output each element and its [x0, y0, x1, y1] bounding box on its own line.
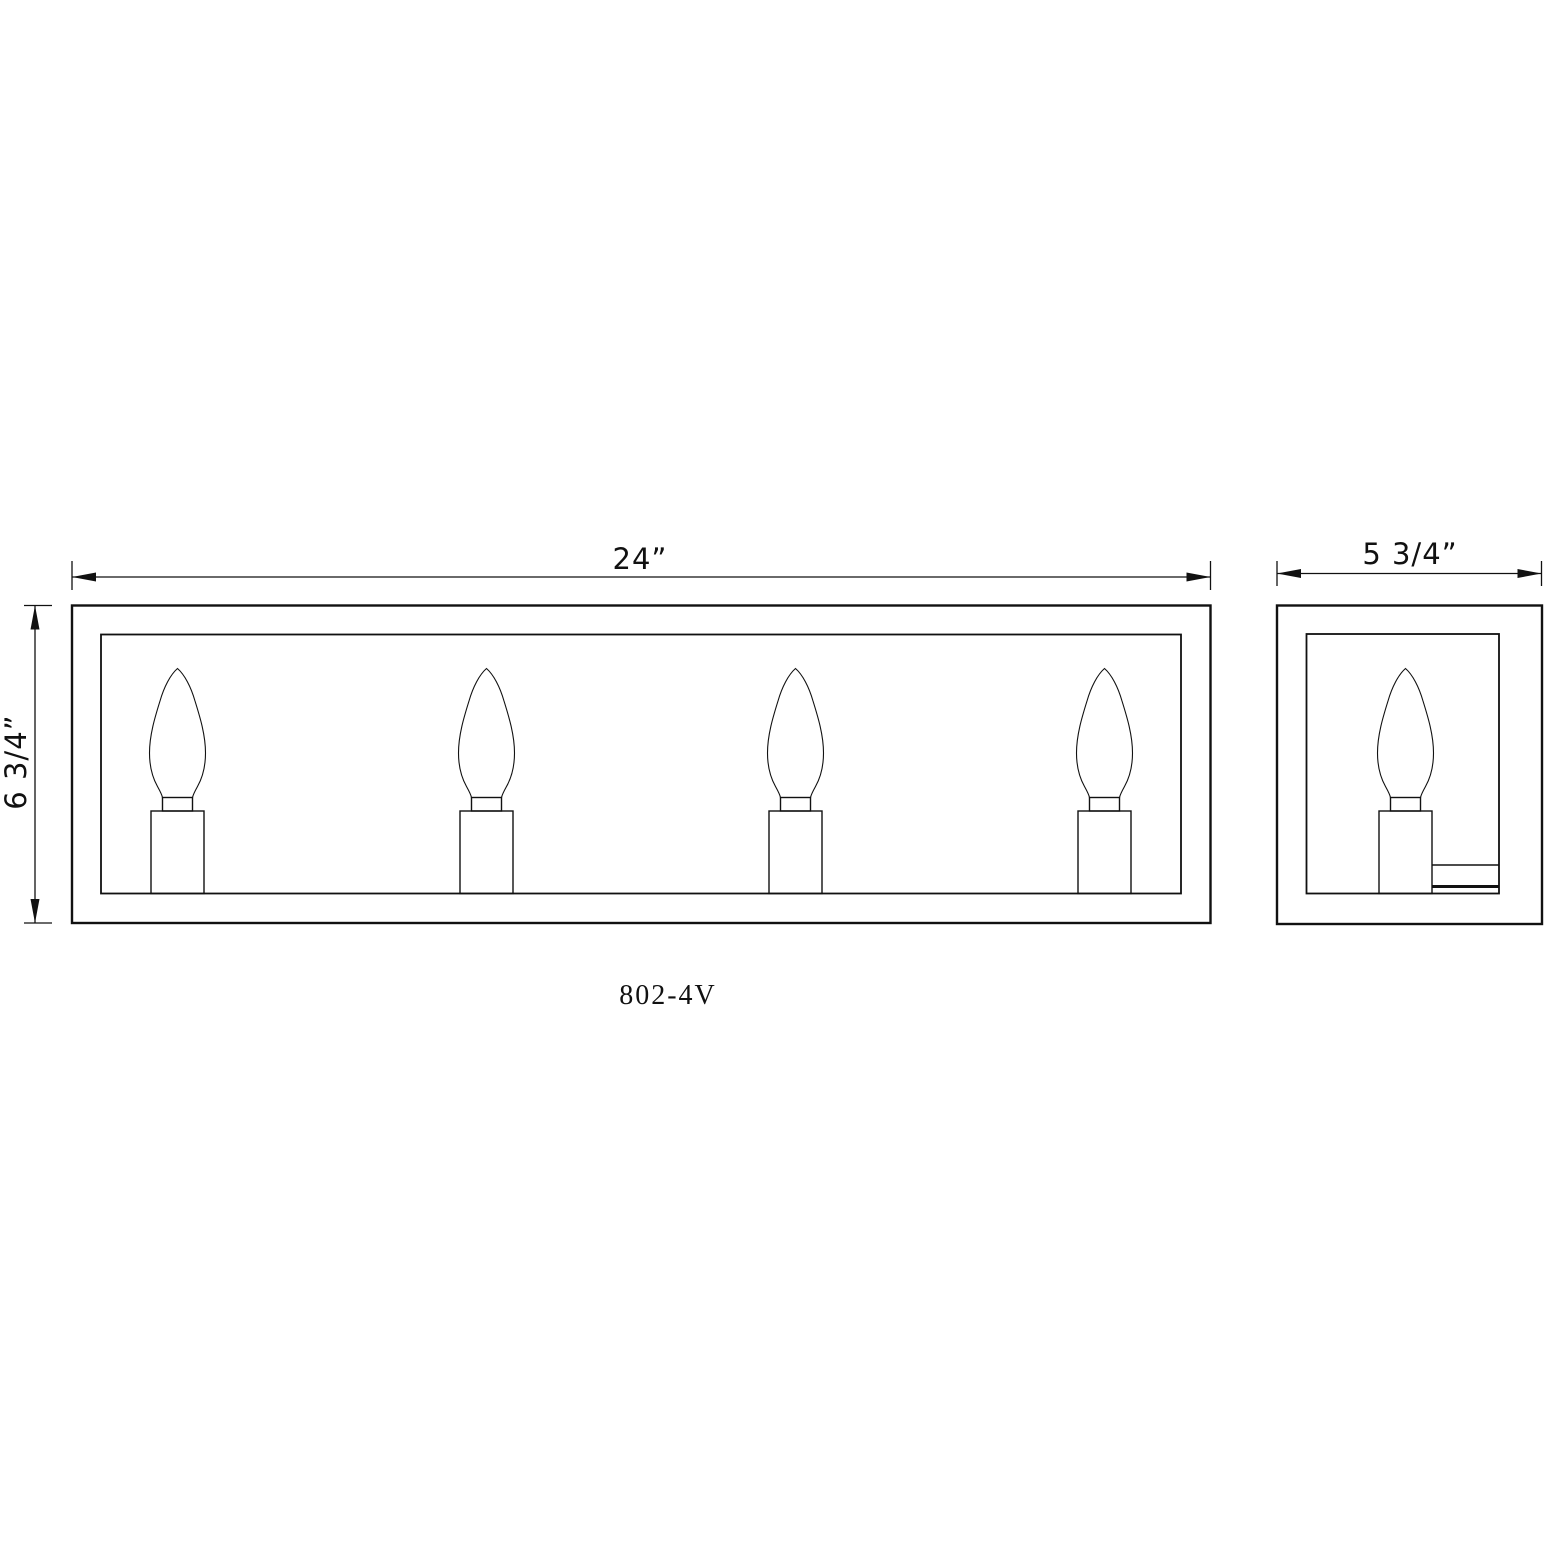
arrowhead-left [72, 573, 96, 582]
width-dimension-label: 24” [613, 542, 668, 576]
arrowhead-right [1187, 573, 1211, 582]
candle-lamp-4 [1077, 669, 1133, 894]
wall-mount-bracket [1432, 865, 1500, 887]
dimension-depth: 5 3/4” [1277, 537, 1542, 586]
vanity-light-dimension-drawing: 24” 6 3/4” 5 3/4” 802-4V [0, 0, 1544, 1544]
candle-lamp-2 [459, 669, 515, 894]
front-view [72, 606, 1211, 924]
depth-dimension-label: 5 3/4” [1362, 537, 1457, 571]
front-inner-frame [101, 635, 1181, 894]
candle-lamp-side [1378, 669, 1434, 894]
side-inner-frame [1307, 634, 1500, 894]
candle-lamp-3 [768, 669, 824, 894]
model-number-label: 802-4V [619, 980, 717, 1011]
candle-lamp-1 [150, 669, 206, 894]
side-view [1277, 606, 1542, 925]
technical-drawing-page: 24” 6 3/4” 5 3/4” 802-4V [0, 0, 1544, 1544]
height-dimension-label: 6 3/4” [0, 714, 33, 809]
front-outer-frame [72, 606, 1211, 924]
dimension-width: 24” [72, 542, 1211, 590]
arrowhead-bottom [31, 899, 40, 923]
arrowhead-right [1518, 569, 1542, 578]
dimension-height: 6 3/4” [0, 606, 52, 924]
arrowhead-left [1277, 569, 1301, 578]
arrowhead-top [31, 606, 40, 630]
side-outer-frame [1277, 606, 1542, 925]
